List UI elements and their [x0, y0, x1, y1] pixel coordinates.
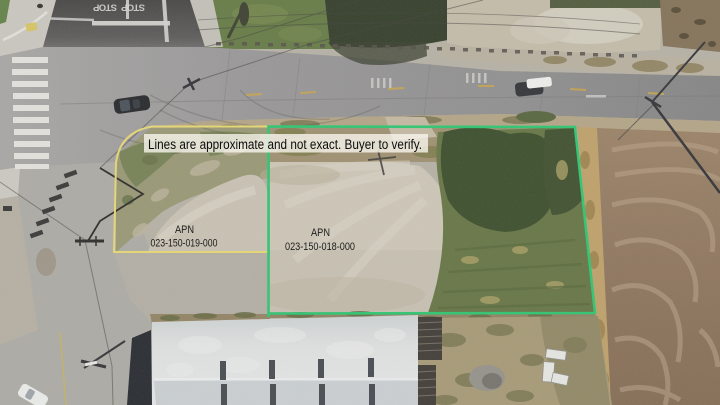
svg-text:APN: APN: [311, 227, 330, 239]
svg-text:Lines are approximate and not: Lines are approximate and not exact. Buy…: [148, 137, 422, 152]
svg-text:APN: APN: [175, 224, 194, 236]
svg-text:023-150-019-000: 023-150-019-000: [151, 238, 218, 250]
svg-text:023-150-018-000: 023-150-018-000: [285, 241, 355, 253]
